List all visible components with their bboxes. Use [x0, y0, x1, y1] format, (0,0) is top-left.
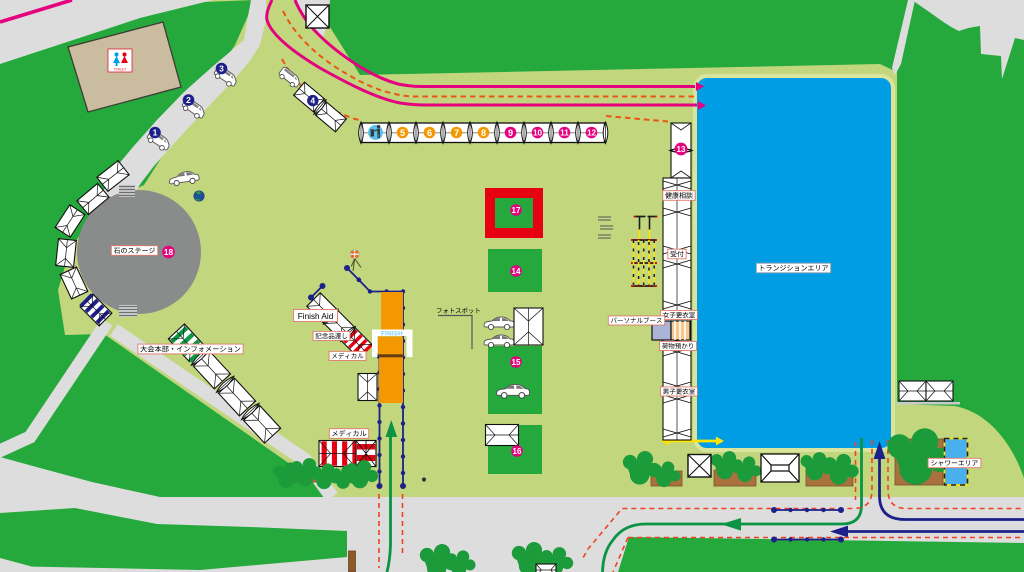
svg-text:14: 14	[512, 267, 521, 276]
svg-text:5: 5	[400, 128, 405, 138]
svg-text:12: 12	[587, 129, 597, 138]
svg-text:16: 16	[513, 447, 522, 456]
svg-text:1: 1	[153, 128, 158, 138]
svg-text:TOILET: TOILET	[114, 68, 127, 72]
svg-text:3: 3	[219, 64, 224, 74]
svg-text:2: 2	[186, 95, 191, 105]
svg-text:4: 4	[310, 96, 315, 106]
svg-text:17: 17	[512, 206, 521, 215]
svg-text:10: 10	[533, 129, 543, 138]
svg-text:18: 18	[164, 247, 174, 257]
svg-text:Finish Aid: Finish Aid	[298, 312, 334, 321]
svg-text:6: 6	[427, 128, 432, 138]
svg-text:9: 9	[508, 128, 513, 138]
svg-text:FINISH: FINISH	[381, 330, 403, 337]
svg-text:11: 11	[560, 129, 569, 138]
svg-text:7: 7	[454, 128, 459, 138]
svg-text:8: 8	[481, 128, 486, 138]
svg-text:15: 15	[512, 358, 521, 367]
svg-text:13: 13	[677, 145, 686, 154]
